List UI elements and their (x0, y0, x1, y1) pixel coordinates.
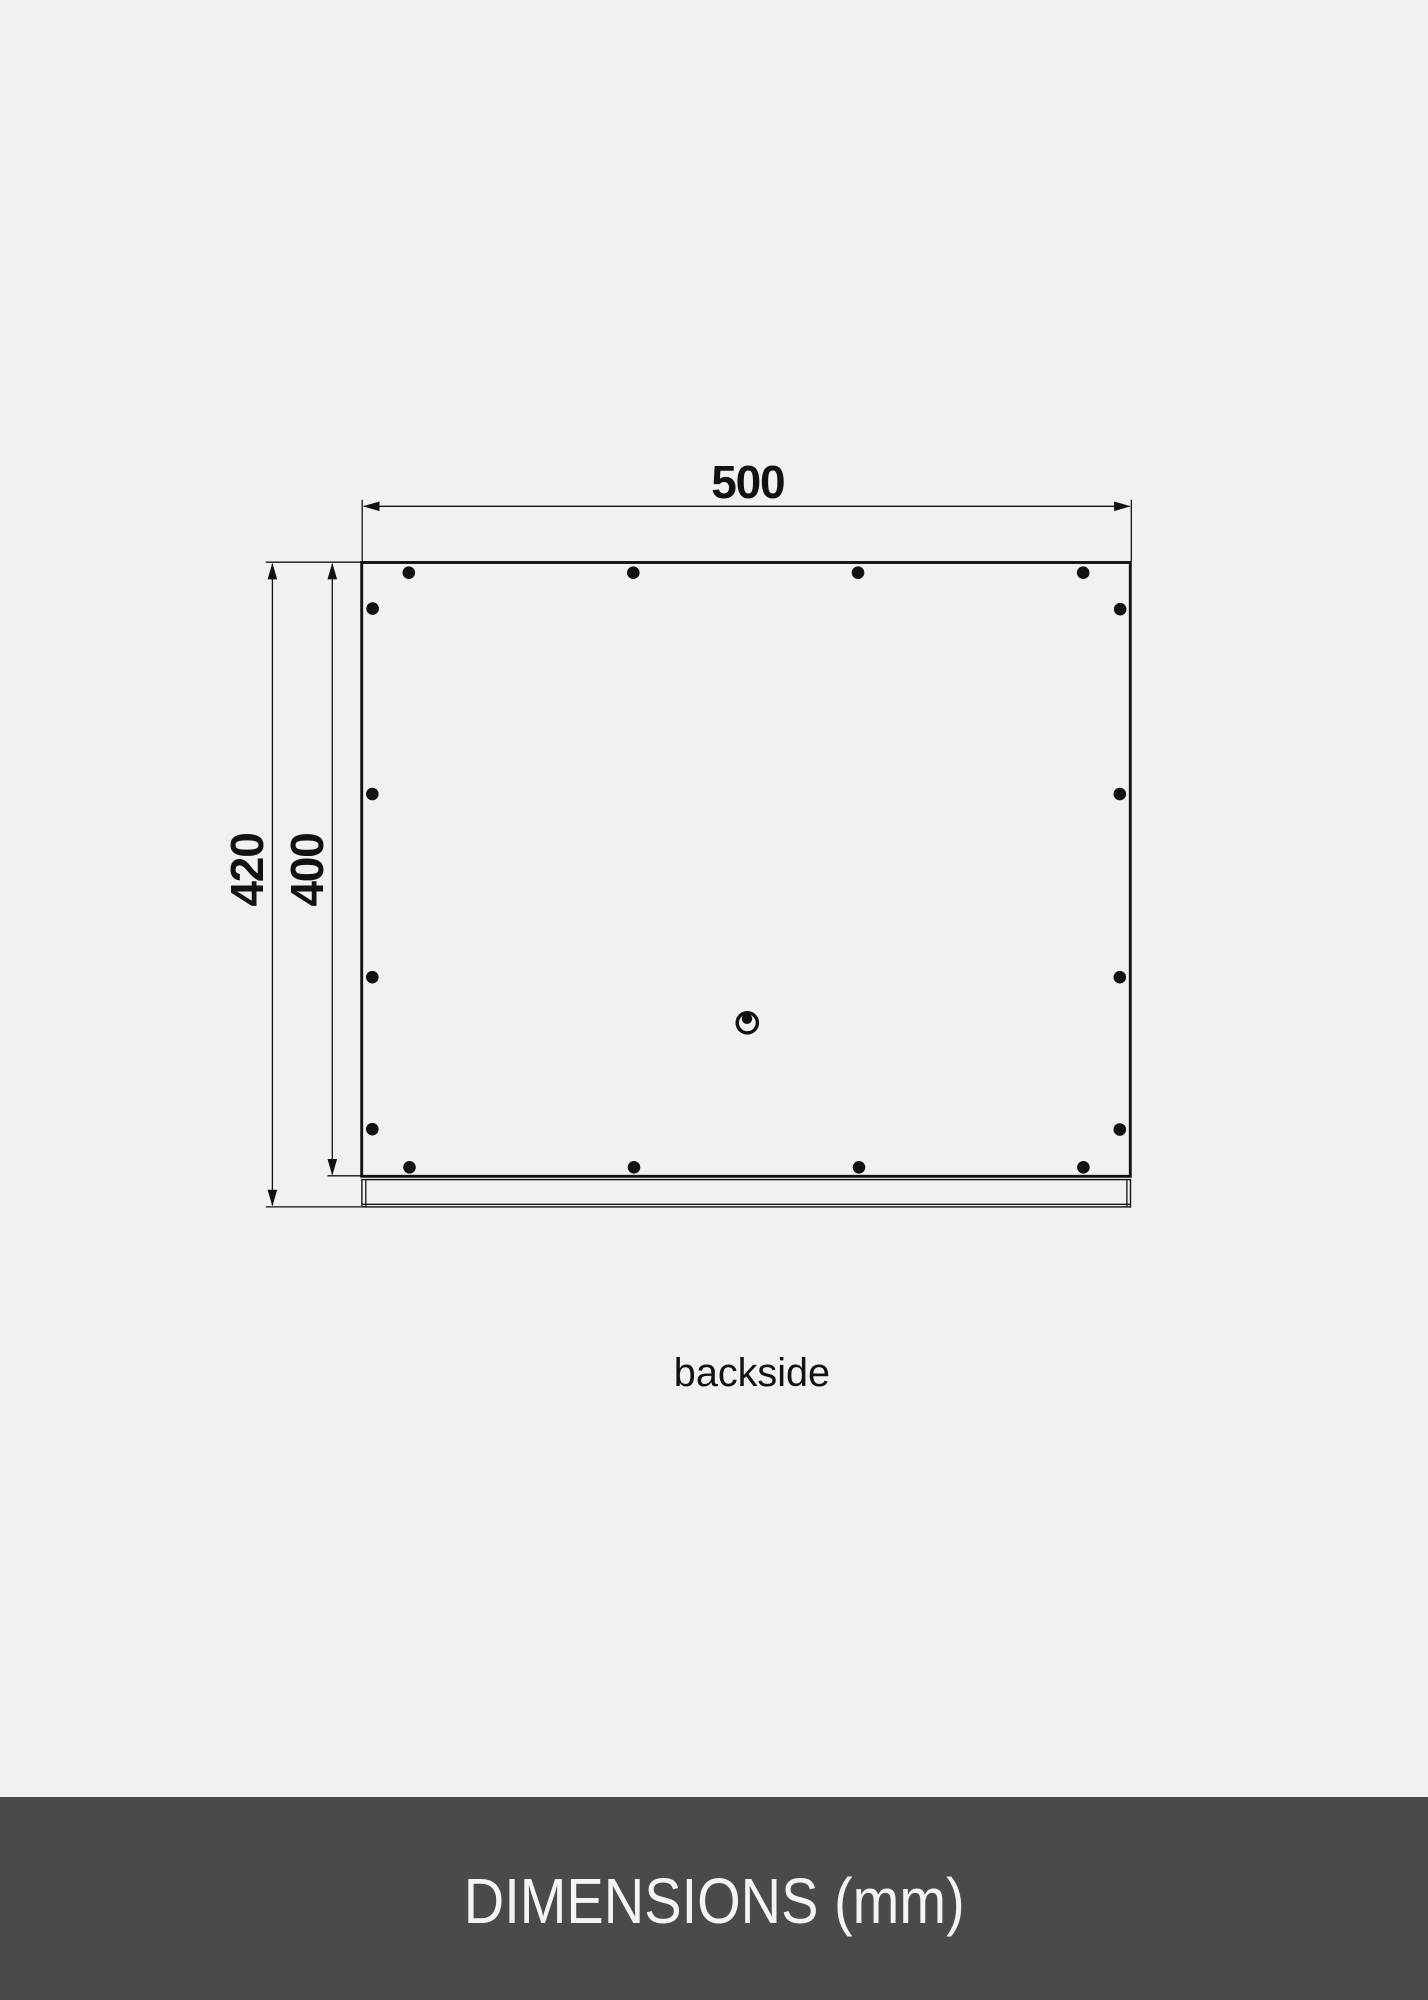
svg-text:500: 500 (711, 456, 784, 508)
svg-text:420: 420 (221, 833, 273, 906)
svg-text:400: 400 (281, 833, 333, 906)
